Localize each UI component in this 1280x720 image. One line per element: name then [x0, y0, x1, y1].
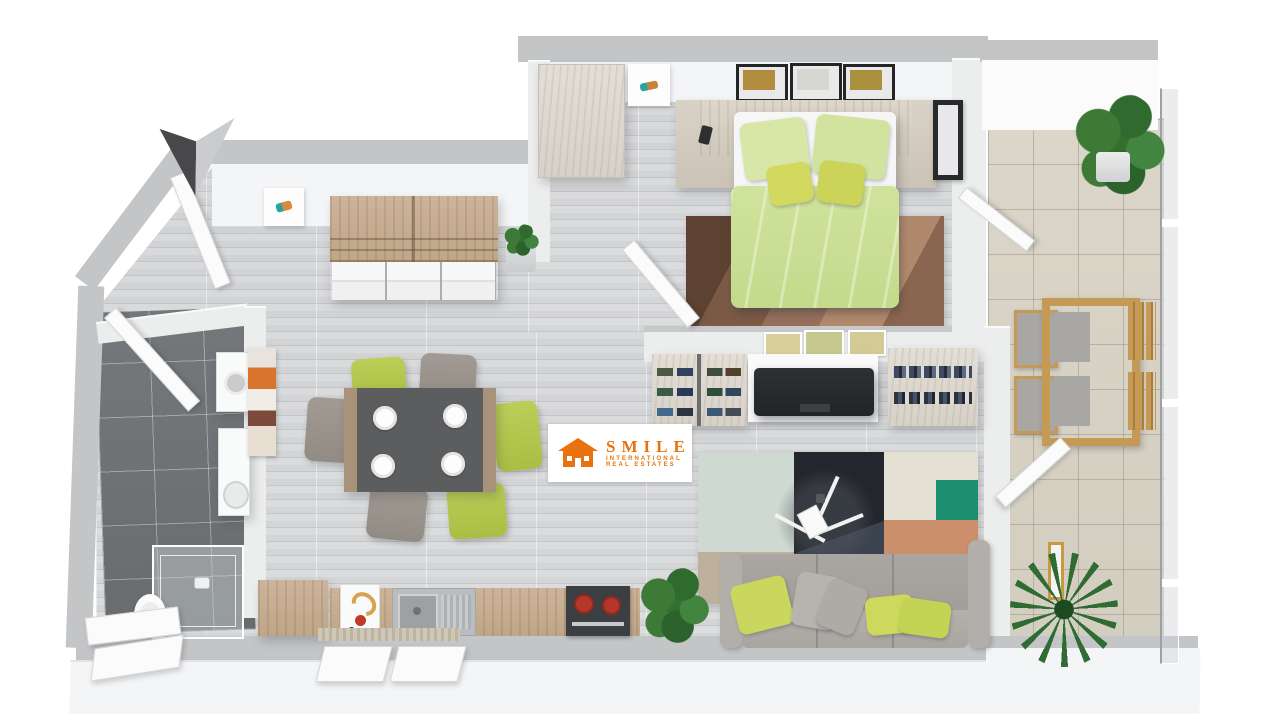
railing-post: [1162, 579, 1178, 587]
hall-sideboard: [330, 196, 498, 300]
dining-plate: [371, 454, 395, 478]
pot-red: [574, 594, 594, 614]
shoes-row: [657, 388, 693, 396]
kitchen-window-sill: [318, 628, 460, 641]
dining-plate: [443, 404, 467, 428]
sideboard-drawers: [332, 262, 496, 300]
rug-patch-teal: [936, 480, 978, 520]
balcony-chair-slat-back: [1128, 302, 1156, 360]
shoes-row: [707, 368, 741, 376]
shower-head: [194, 577, 210, 589]
sink-faucet: [413, 607, 421, 615]
balcony-plant-pot: [1096, 152, 1130, 182]
dining-chair-gray: [365, 483, 428, 543]
bed-picture-frame: [843, 64, 895, 102]
logo-subtitle-line2: REAL ESTATES: [606, 462, 691, 468]
bedroom-wall-art-small: [628, 64, 670, 106]
sideboard-shelf-lines: [330, 232, 498, 262]
sofa-armrest: [968, 540, 990, 648]
vanity-sink: [223, 481, 249, 509]
sideboard-shelf-top: [330, 196, 498, 262]
logo-brand-text: SMILE: [606, 438, 691, 456]
shoe-rack-divider: [697, 354, 701, 426]
hall-wall-art: [264, 188, 304, 226]
abstract-wall-art: [248, 348, 276, 456]
sofa: [720, 554, 990, 648]
black-framed-picture: [933, 100, 963, 180]
sofa-pillow-green: [898, 597, 953, 640]
bed-duvet: [731, 186, 899, 308]
balcony-glass-railing: [1160, 88, 1179, 664]
washing-machine-door: [224, 371, 248, 395]
shoe-rack: [652, 354, 747, 426]
tv-stand: [800, 404, 830, 412]
balcony-large-plant: [1072, 92, 1166, 204]
bed-picture-frame: [790, 63, 842, 102]
succulent-plant: [502, 224, 540, 258]
dining-plate: [441, 452, 465, 476]
bathroom-vanity: [218, 428, 250, 516]
shoes-row: [707, 388, 741, 396]
frame-art: [850, 70, 882, 90]
floor-lamp-bulb: [816, 494, 825, 503]
bed-pillow-small: [765, 161, 815, 207]
railing-post: [1162, 399, 1178, 407]
shoes-row: [707, 408, 741, 416]
oven-handle: [572, 622, 624, 626]
bookshelf: [888, 348, 978, 426]
stove: [566, 586, 630, 636]
balcony-palm-plant: [1010, 552, 1118, 667]
dining-table: [344, 388, 496, 492]
frame-art: [797, 69, 829, 90]
washing-machine: [216, 352, 250, 412]
living-floor-plant: [638, 566, 710, 650]
frame-art: [743, 70, 775, 90]
floor-lamp-shadow: [776, 468, 876, 568]
pot-red: [602, 596, 621, 615]
house-roof-icon: [558, 438, 598, 451]
small-picture: [848, 330, 886, 356]
railing-post: [1162, 219, 1178, 227]
kitchen-window-pane: [316, 646, 393, 682]
balcony-chair-cushion: [1054, 312, 1090, 362]
bedroom-top-wall: [518, 36, 988, 62]
dining-plate: [373, 406, 397, 430]
tomato: [355, 615, 366, 626]
balcony-top-wall-edge: [980, 40, 1158, 62]
bedroom-art-motif: [639, 80, 658, 92]
balcony-chair-cushion: [1054, 376, 1090, 426]
shoes-row: [657, 408, 693, 416]
shoes-row: [657, 368, 693, 376]
dining-chair-green: [491, 400, 544, 472]
north-arrow-icon: [158, 118, 236, 196]
bed-picture-frame: [736, 64, 788, 102]
hall-wall-art-motif: [275, 200, 293, 213]
books-row: [894, 392, 972, 404]
books-row: [894, 366, 972, 378]
bed-pillow-small: [816, 159, 867, 206]
sink-drainer-lines: [441, 595, 471, 629]
kitchen-window-pane: [390, 646, 467, 682]
balcony-table-frame: [1042, 298, 1140, 446]
wardrobe: [538, 64, 625, 178]
floor-plan-render: SMILE INTERNATIONAL REAL ESTATES: [0, 0, 1280, 720]
balcony-chair-slat-back: [1128, 372, 1156, 430]
house-body-icon: [563, 451, 593, 467]
watermark-logo: SMILE INTERNATIONAL REAL ESTATES: [548, 424, 692, 482]
house-icon: [558, 436, 598, 470]
north-arrow-light-half: [158, 118, 236, 196]
hall-top-wall: [198, 140, 532, 164]
tv: [754, 368, 874, 416]
